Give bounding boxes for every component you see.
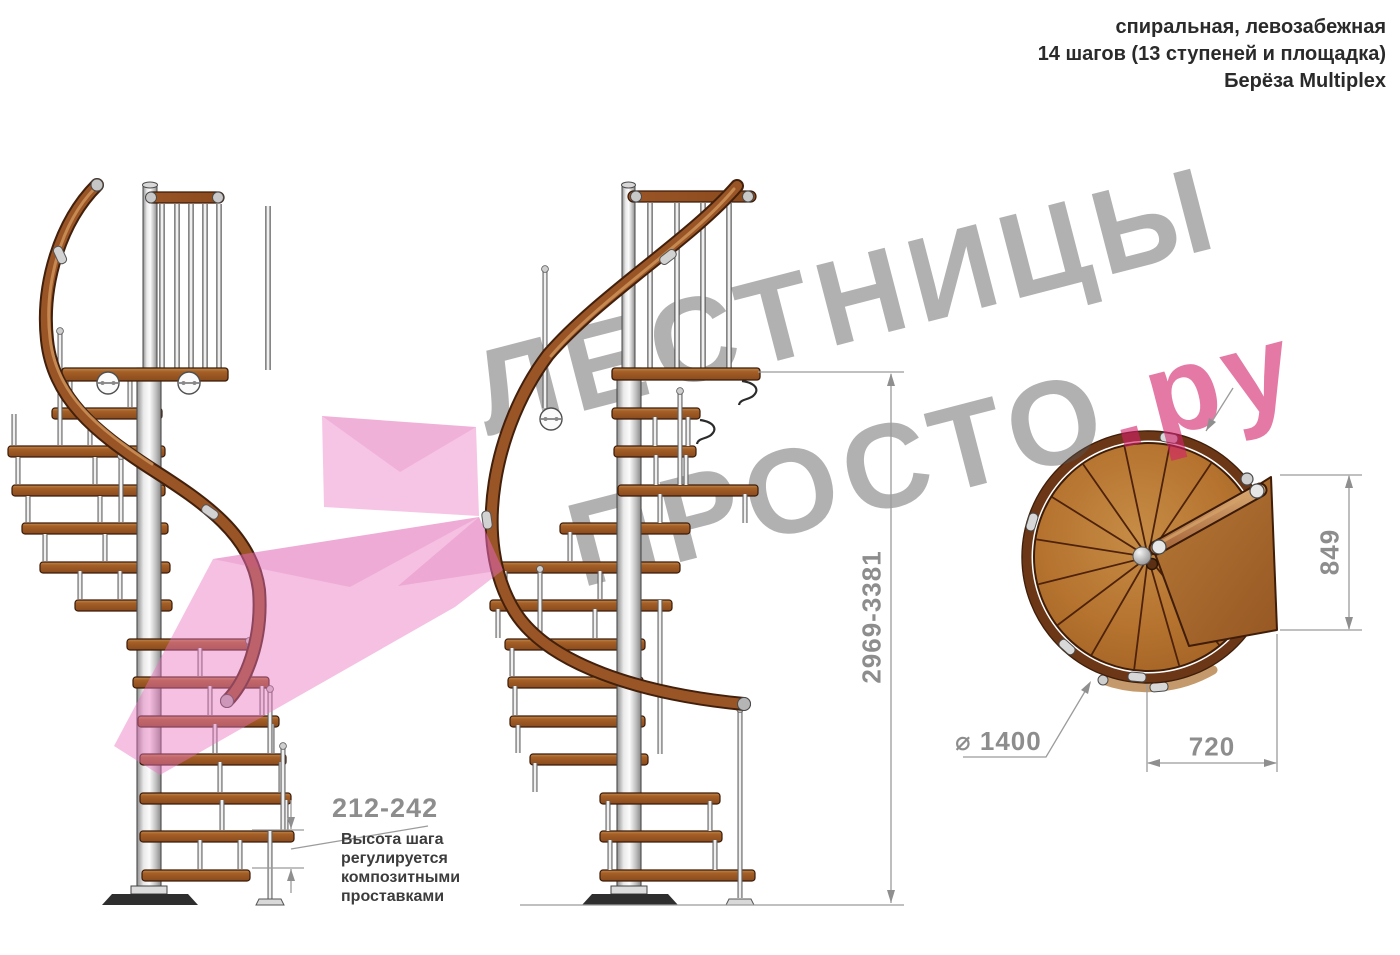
elevations-and-dimensions: [0, 0, 1400, 955]
title-line-1: спиральная, левозабежная: [1038, 14, 1386, 41]
dimension-landing-width: 849: [1315, 529, 1346, 575]
dimension-arrowheads: [287, 373, 1353, 903]
landing-flange-plates-center: [540, 408, 562, 430]
note-line-2: регулируется: [341, 849, 460, 868]
note-line-1: Высота шага: [341, 830, 460, 849]
side-view-center-staircase: [481, 182, 760, 905]
staircase-drawing-sheet: ЛЕСТНИЦЫ ПРОСТО.ру: [0, 0, 1400, 955]
dimension-step-height: 212-242: [332, 793, 438, 824]
side-view-left-staircase: [8, 179, 294, 905]
dimension-landing-depth: 720: [1189, 732, 1235, 763]
note-line-3: композитными: [341, 868, 460, 887]
dimension-lines: [252, 372, 1362, 905]
dimension-diameter: ⌀ 1400: [955, 726, 1042, 757]
dimension-total-height: 2969-3381: [857, 550, 888, 683]
title-line-3: Берёза Multiplex: [1038, 68, 1386, 95]
step-height-note: Высота шага регулируется композитными пр…: [341, 830, 460, 906]
title-block: спиральная, левозабежная 14 шагов (13 ст…: [1038, 14, 1386, 95]
note-line-4: проставками: [341, 887, 460, 906]
title-line-2: 14 шагов (13 ступеней и площадка): [1038, 41, 1386, 68]
